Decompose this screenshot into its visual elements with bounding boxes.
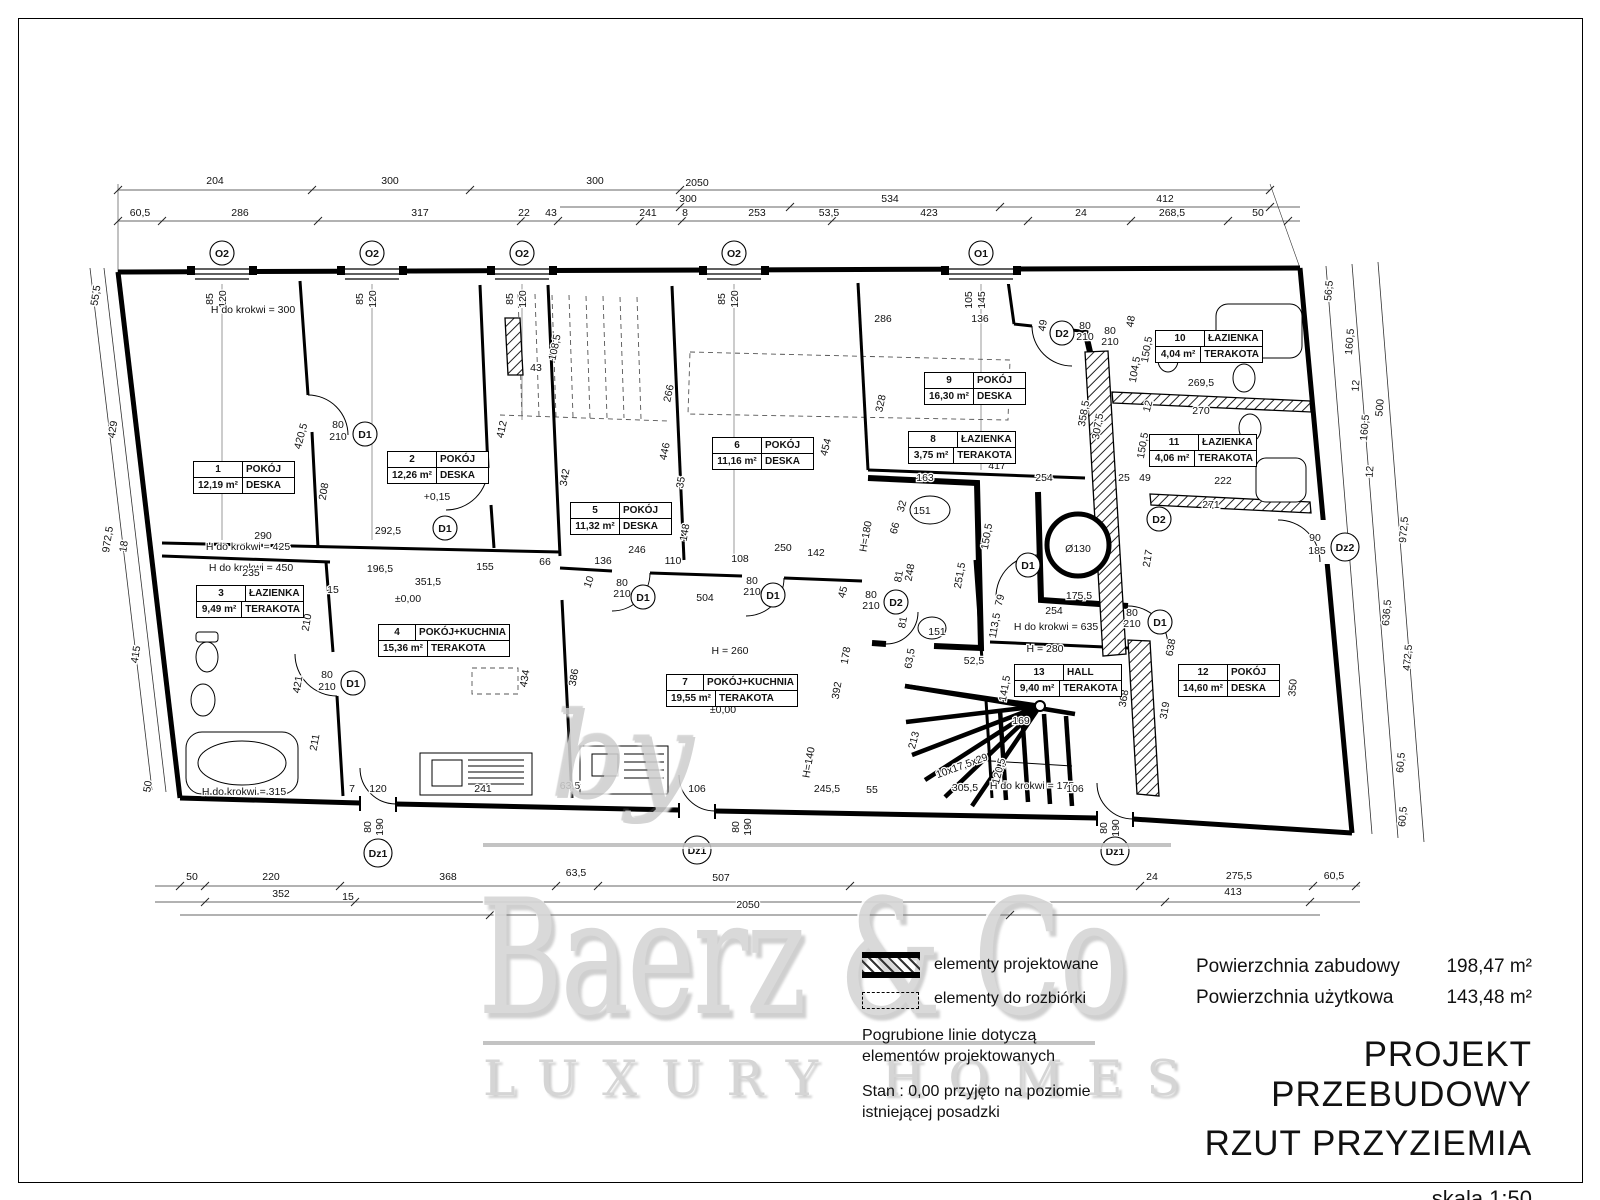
dim-label: 120 — [729, 290, 741, 308]
dim-label: H = 280 — [1026, 643, 1063, 655]
dim-label: 150,5 — [1139, 335, 1155, 363]
dim-label: 213 — [906, 730, 922, 750]
svg-text:O2: O2 — [515, 248, 529, 260]
dim-label: 151 — [913, 505, 931, 517]
dim-label: 290 — [254, 530, 272, 542]
legend: elementy projektowane elementy do rozbió… — [862, 952, 1099, 1123]
dim-label: 210 — [1076, 331, 1094, 343]
dim-label: 429 — [106, 420, 121, 439]
dim-label: 35 — [674, 476, 688, 490]
dim-label: 211 — [308, 733, 323, 752]
dim-label: 12 — [1364, 465, 1377, 478]
dim-label: 204 — [206, 175, 224, 187]
svg-text:D1: D1 — [438, 523, 452, 535]
dim-label: 50 — [141, 780, 155, 794]
dim-label: H do krokwi = 635 — [1014, 621, 1098, 633]
dim-label: 106 — [1066, 783, 1084, 795]
dim-label: 190 — [1110, 819, 1122, 837]
svg-text:O2: O2 — [365, 248, 379, 260]
dim-label: 269,5 — [1188, 377, 1214, 389]
dim-label: 2050 — [685, 177, 709, 189]
dim-label: 50 — [1252, 207, 1264, 219]
dim-label: 423 — [920, 207, 938, 219]
dim-label: 10 — [582, 574, 597, 589]
area-built-label: Powierzchnia zabudowy — [1196, 956, 1400, 978]
area-usable-value: 143,48 m² — [1446, 987, 1532, 1009]
dim-label: 60,5 — [1324, 870, 1345, 882]
svg-text:D2: D2 — [889, 597, 903, 609]
svg-text:O1: O1 — [974, 248, 988, 260]
dim-label: 80 — [332, 419, 344, 431]
dim-label: 235 — [242, 567, 260, 579]
dim-label: 85 — [716, 293, 728, 305]
dim-label: 63,5 — [902, 647, 917, 669]
marker-d1: D1 — [631, 585, 655, 609]
dim-label: 66 — [888, 521, 903, 536]
dim-label: 63,5 — [560, 780, 581, 792]
svg-text:D2: D2 — [1055, 328, 1069, 340]
dim-label: 254 — [1045, 605, 1063, 617]
dim-label: 241 — [639, 207, 657, 219]
dim-label: 420,5 — [292, 422, 310, 451]
dim-label: 48 — [1124, 315, 1138, 329]
dim-label: 60,5 — [130, 207, 151, 219]
dim-label: 106 — [688, 783, 706, 795]
dim-label: 210 — [329, 431, 347, 443]
dim-label: 7 — [349, 783, 355, 795]
dim-label: 305,5 — [952, 782, 978, 794]
dim-label: 22 — [518, 207, 530, 219]
dim-label: 63,5 — [566, 867, 587, 879]
legend-swatch-projected — [862, 952, 920, 978]
dim-label: 972,5 — [100, 525, 116, 553]
dim-label: 50 — [186, 871, 198, 883]
dim-label: 220 — [262, 871, 280, 883]
floor-plan-sheet: 204300300205030053441260,528631722432418… — [0, 0, 1600, 1200]
dim-label: 300 — [381, 175, 399, 187]
dim-label: H do krokwi = 300 — [211, 304, 295, 316]
toilet — [196, 642, 218, 672]
dim-label: 217 — [1141, 549, 1156, 568]
dim-label: 60,5 — [1396, 806, 1410, 828]
svg-text:D1: D1 — [766, 590, 780, 602]
svg-text:Dz2: Dz2 — [1336, 542, 1355, 554]
dim-label: 638 — [1164, 638, 1179, 657]
dim-label: 81 — [892, 570, 906, 584]
marker-d1: D1 — [353, 422, 377, 446]
dim-label: 45 — [836, 585, 851, 600]
dim-label: 178 — [839, 646, 854, 665]
legend-note-line2: elementów projektowanych — [862, 1046, 1099, 1067]
marker-d1: D1 — [1016, 553, 1040, 577]
legend-note2-line1: Stan : 0,00 przyjęto na poziomie — [862, 1081, 1099, 1102]
dim-label: 80 — [730, 821, 742, 833]
legend-label-projected: elementy projektowane — [934, 956, 1099, 974]
dim-label: 85 — [504, 293, 516, 305]
dim-label: 160,5 — [1358, 414, 1372, 441]
dim-label: 210 — [862, 600, 880, 612]
dim-label: ±0,00 — [710, 704, 736, 716]
dim-label: 245,5 — [814, 783, 840, 795]
svg-text:Dz1: Dz1 — [688, 845, 707, 857]
dim-label: 210 — [1123, 618, 1141, 630]
marker-o2: O2 — [360, 241, 384, 265]
project-title-line2: RZUT PRZYZIEMIA — [1150, 1124, 1532, 1164]
dim-label: 271 — [1202, 499, 1220, 511]
dim-label: 412 — [494, 419, 509, 439]
svg-text:D2: D2 — [1152, 514, 1166, 526]
dim-label: 79 — [993, 593, 1008, 608]
dim-label: 56,5 — [1322, 280, 1336, 302]
marker-o2: O2 — [210, 241, 234, 265]
marker-d1: D1 — [761, 583, 785, 607]
dim-label: 250 — [774, 542, 792, 554]
dim-label: 80 — [1098, 822, 1110, 834]
marker-dz1: Dz1 — [683, 836, 711, 864]
svg-text:D1: D1 — [1021, 560, 1035, 572]
dim-label: 222 — [1214, 475, 1232, 487]
marker-d2: D2 — [1050, 321, 1074, 345]
dim-label: 246 — [628, 544, 646, 556]
dim-label: 85 — [354, 293, 366, 305]
dim-label: 43 — [545, 207, 557, 219]
dim-label: 421 — [291, 675, 306, 694]
sink — [191, 684, 215, 716]
project-title-line1: PROJEKT PRZEBUDOWY — [1150, 1035, 1532, 1115]
dim-label: 8 — [682, 207, 688, 219]
dim-label: 49 — [1139, 472, 1151, 484]
dim-label: 105 — [963, 291, 975, 309]
marker-d1: D1 — [1148, 610, 1172, 634]
marker-d2: D2 — [884, 590, 908, 614]
dim-label: H do krokwi = 425 — [206, 541, 290, 553]
dim-label: 368 — [439, 871, 457, 883]
dim-label: 210 — [300, 613, 315, 632]
legend-swatch-demolition — [862, 992, 919, 1009]
area-built-value: 198,47 m² — [1446, 956, 1532, 978]
dim-label: 251,5 — [952, 561, 968, 589]
area-usable-label: Powierzchnia użytkowa — [1196, 987, 1393, 1009]
dim-label: 415 — [129, 645, 144, 664]
dim-label: 55 — [866, 784, 878, 796]
dim-label: 49 — [1036, 319, 1050, 333]
toilet — [1239, 414, 1261, 442]
dim-label: 342 — [558, 468, 573, 487]
legend-note-line1: Pogrubione linie dotyczą — [862, 1025, 1099, 1046]
dim-label: 185 — [1308, 545, 1326, 557]
kitchen-counter — [580, 746, 668, 794]
marker-o1: O1 — [969, 241, 993, 265]
reference-markers: O2O2O2O2O1D1D1D1D1D1D1D1D2D2D2Dz1Dz1Dz1D… — [210, 241, 1359, 867]
dim-label: 210 — [743, 586, 761, 598]
dim-label: 110 — [665, 555, 682, 567]
dim-label: 151 — [928, 626, 946, 638]
dim-label: 210 — [613, 588, 631, 600]
dim-label: H=140 — [800, 746, 817, 779]
dim-label: 268,5 — [1159, 207, 1185, 219]
dim-label: 253 — [748, 207, 766, 219]
dim-label: 446 — [657, 441, 672, 461]
marker-o2: O2 — [722, 241, 746, 265]
legend-note2-line2: istniejącej posadzki — [862, 1102, 1099, 1123]
title-block: Powierzchnia zabudowy 198,47 m² Powierzc… — [1150, 956, 1532, 1200]
dim-label: 266 — [661, 383, 676, 403]
dim-label: 454 — [818, 437, 834, 457]
dim-label: H do krokwi = 315 — [202, 786, 286, 798]
dim-label: 300 — [586, 175, 604, 187]
dim-label: 80 — [321, 669, 333, 681]
dim-label: 2050 — [736, 899, 760, 911]
dim-label: 136 — [971, 313, 989, 325]
dim-label: 417 — [988, 460, 1006, 472]
dim-label: H do krokwi = 175 — [990, 780, 1074, 792]
dim-label: 60,5 — [1394, 752, 1408, 774]
dim-label: H=180 — [857, 520, 874, 553]
dim-label: 504 — [696, 592, 714, 604]
dim-label: 210 — [1101, 336, 1119, 348]
dim-label: 190 — [742, 818, 754, 836]
svg-text:D1: D1 — [358, 429, 372, 441]
dim-label: 145 — [976, 291, 988, 309]
legend-label-demolition: elementy do rozbiórki — [934, 990, 1086, 1008]
dim-label: 386 — [567, 668, 582, 687]
dim-label: 90 — [1309, 532, 1321, 544]
dim-label: 507 — [712, 872, 730, 884]
dim-label: 81 — [896, 616, 910, 630]
dim-label: 52,5 — [964, 655, 985, 667]
dim-label: 350 — [1286, 678, 1299, 697]
dim-label: 148 — [678, 523, 693, 542]
dim-label: 534 — [881, 193, 899, 205]
dim-label: 286 — [874, 313, 892, 325]
marker-dz1: Dz1 — [364, 839, 392, 867]
dim-label: 434 — [518, 669, 533, 688]
dim-label: 413 — [1224, 886, 1242, 898]
dim-label: 208 — [317, 482, 332, 501]
dim-label: 141,5 — [997, 674, 1013, 702]
dim-label: 18 — [117, 540, 131, 554]
dim-label: 175,5 — [1066, 590, 1092, 602]
marker-d1: D1 — [433, 516, 457, 540]
dim-label: Ø130 — [1065, 543, 1091, 555]
dim-label: 392 — [830, 681, 845, 700]
dim-label: 210 — [318, 681, 336, 693]
svg-text:D1: D1 — [1153, 617, 1167, 629]
dim-label: 352 — [272, 888, 290, 900]
dim-label: 636,5 — [1380, 599, 1394, 626]
dim-label: 32 — [895, 499, 910, 514]
dim-label: 12 — [1350, 379, 1363, 392]
dim-label: ±0,00 — [395, 593, 421, 605]
svg-text:O2: O2 — [727, 248, 741, 260]
svg-text:O2: O2 — [215, 248, 229, 260]
dim-label: 150,5 — [979, 522, 995, 550]
dim-label: 190 — [374, 818, 386, 836]
dim-label: 80 — [362, 821, 374, 833]
dim-label: 15 — [342, 891, 354, 903]
dim-label: 142 — [807, 547, 825, 559]
dim-label: 254 — [1035, 472, 1053, 484]
dim-label: 317 — [411, 207, 429, 219]
dim-label: 24 — [1075, 207, 1087, 219]
marker-d1: D1 — [341, 671, 365, 695]
dim-label: 328 — [873, 393, 888, 413]
dim-label: 351,5 — [415, 576, 441, 588]
dim-label: 163 — [916, 472, 934, 484]
dim-label: 169 — [1012, 715, 1030, 727]
toilet — [1233, 364, 1255, 392]
svg-text:Dz1: Dz1 — [1106, 846, 1125, 858]
dim-label: 196,5 — [367, 563, 393, 575]
dim-label: 472,5 — [1401, 644, 1415, 671]
dim-label: 150,5 — [1135, 431, 1151, 459]
dim-label: 500 — [1373, 398, 1386, 417]
dim-label: 136 — [594, 555, 612, 567]
dim-label: 241 — [474, 783, 492, 795]
dim-label: 412 — [1156, 193, 1174, 205]
shower — [1256, 458, 1306, 502]
dim-label: 300 — [679, 193, 697, 205]
dim-label: +0,15 — [424, 491, 451, 503]
dim-label: 113,5 — [987, 612, 1003, 639]
marker-dz2: Dz2 — [1331, 533, 1359, 561]
dim-label: 368 — [1117, 689, 1132, 708]
dim-label: 53,5 — [819, 207, 840, 219]
dim-label: 55,5 — [89, 284, 104, 306]
dim-label: 25 — [1118, 472, 1130, 484]
dim-label: 292,5 — [375, 525, 401, 537]
dim-label: 270 — [1192, 405, 1210, 417]
scale-label: skala 1:50 — [1150, 1186, 1532, 1200]
dim-label: 43 — [530, 362, 542, 374]
dim-label: 15 — [327, 584, 339, 596]
dim-label: 319 — [1158, 701, 1173, 720]
dim-label: 66 — [539, 556, 551, 568]
svg-text:D1: D1 — [346, 678, 360, 690]
dim-label: 275,5 — [1226, 870, 1252, 882]
dim-label: 972,5 — [1397, 516, 1411, 543]
dim-label: 160,5 — [1343, 328, 1357, 355]
dim-label: 24 — [1146, 871, 1158, 883]
marker-o2: O2 — [510, 241, 534, 265]
dim-label: 120 — [369, 783, 387, 795]
hatched-walls — [505, 318, 1311, 796]
dim-label: 108 — [731, 553, 749, 565]
bathtub — [1216, 304, 1302, 358]
dim-label: 120 — [517, 290, 529, 308]
dim-label: H = 260 — [711, 645, 748, 657]
marker-d2: D2 — [1147, 507, 1171, 531]
dim-label: 155 — [476, 561, 494, 573]
marker-dz1: Dz1 — [1101, 837, 1129, 865]
svg-text:D1: D1 — [636, 592, 650, 604]
dim-label: 286 — [231, 207, 249, 219]
dim-label: 120 — [367, 290, 379, 308]
svg-text:Dz1: Dz1 — [369, 848, 388, 860]
